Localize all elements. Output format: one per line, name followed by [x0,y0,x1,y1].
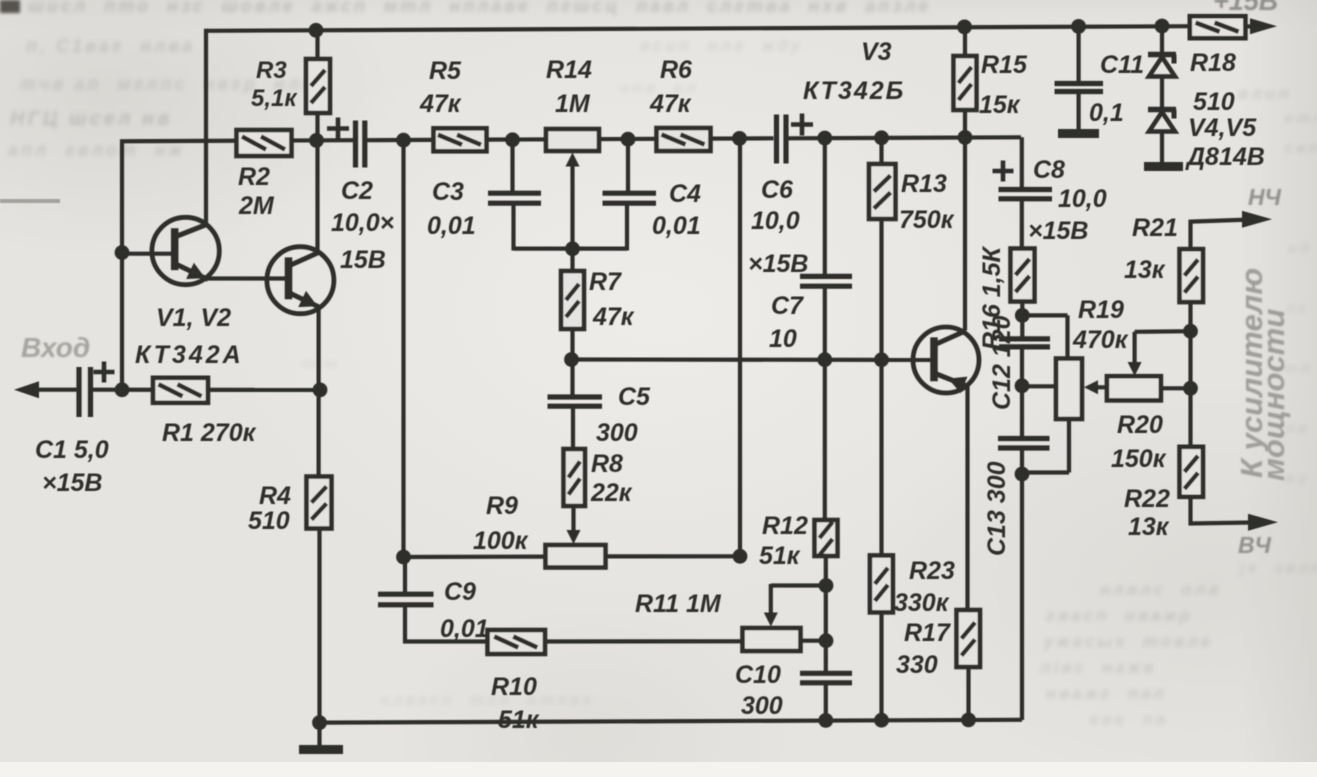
svg-text:×15В: ×15В [748,250,808,278]
svg-text:R10: R10 [491,673,537,701]
svg-text:15В: 15В [340,246,386,274]
svg-text:V3: V3 [861,38,892,66]
svg-text:С10: С10 [735,661,781,689]
svg-text:13к: 13к [1128,513,1170,541]
svg-text:R9: R9 [486,492,518,520]
svg-text:Д814В: Д814В [1185,143,1265,171]
svg-text:С4: С4 [669,180,701,208]
svg-text:R12: R12 [762,512,808,540]
svg-text:R23: R23 [909,557,955,585]
svg-text:15к: 15к [979,91,1021,119]
svg-text:R5: R5 [429,57,462,85]
svg-text:100к: 100к [473,527,529,555]
svg-text:51к: 51к [498,706,540,734]
svg-text:22к: 22к [590,479,633,507]
svg-text:47к: 47к [649,90,692,118]
svg-text:С2: С2 [341,177,373,205]
svg-text:С7: С7 [771,292,804,320]
svg-text:R3: R3 [256,57,287,84]
svg-text:С12 120: С12 120 [988,315,1016,410]
svg-text:10,0: 10,0 [751,207,800,235]
svg-text:×15В: ×15В [1028,217,1088,245]
svg-text:0,01: 0,01 [440,615,489,643]
svg-text:2М: 2М [238,192,275,220]
svg-text:R1 270к: R1 270к [162,419,257,447]
svg-text:47к: 47к [419,90,462,118]
svg-text:47к: 47к [592,303,635,331]
svg-text:V1, V2: V1, V2 [156,304,231,332]
svg-text:510: 510 [1193,88,1235,116]
svg-text:С9: С9 [444,578,476,606]
svg-text:R18: R18 [1190,49,1236,77]
svg-text:R8: R8 [591,450,623,478]
svg-text:×15В: ×15В [42,469,102,497]
svg-text:470к: 470к [1072,326,1129,354]
svg-text:0,1: 0,1 [1089,99,1124,127]
svg-text:R6: R6 [660,56,693,84]
svg-text:R17: R17 [904,619,951,647]
svg-text:R14: R14 [546,56,592,84]
svg-text:1М: 1М [555,90,591,118]
svg-text:300: 300 [741,692,783,720]
svg-text:R21: R21 [1132,214,1178,242]
svg-text:С11: С11 [1100,51,1144,79]
svg-text:Вход: Вход [21,332,90,363]
svg-text:13к: 13к [1124,256,1166,284]
svg-text:R13: R13 [901,170,947,198]
svg-text:КТ342А: КТ342А [135,341,244,369]
svg-text:НЧ: НЧ [1248,184,1282,210]
svg-text:R22: R22 [1124,485,1170,513]
svg-text:150к: 150к [1111,445,1167,473]
svg-text:0,01: 0,01 [652,212,701,240]
svg-text:510: 510 [248,507,290,535]
svg-text:мощности: мощности [1256,309,1291,481]
svg-text:750к: 750к [899,206,955,234]
svg-text:330: 330 [896,651,938,679]
svg-text:R2: R2 [238,163,270,191]
svg-text:R7: R7 [589,268,622,296]
svg-text:С8: С8 [1033,156,1065,184]
svg-text:10,0: 10,0 [1058,185,1107,213]
svg-text:С3: С3 [432,178,464,206]
svg-text:С1 5,0: С1 5,0 [35,436,109,464]
svg-text:R15: R15 [981,51,1028,79]
svg-text:С13 300: С13 300 [983,461,1011,556]
svg-text:5,1к: 5,1к [251,85,298,112]
svg-text:300: 300 [596,419,638,447]
svg-text:R4: R4 [259,482,291,510]
svg-text:R19: R19 [1078,296,1124,324]
svg-text:КТ342Б: КТ342Б [803,77,905,105]
svg-text:R20: R20 [1117,411,1163,439]
svg-text:+15В: +15В [1213,0,1278,16]
svg-text:С6: С6 [761,176,794,204]
svg-text:V4,V5: V4,V5 [1188,114,1257,142]
svg-text:10: 10 [769,325,797,353]
svg-text:0,01: 0,01 [427,212,476,240]
svg-text:330к: 330к [894,589,950,617]
svg-text:ВЧ: ВЧ [1238,532,1272,558]
svg-text:R11 1М: R11 1М [635,590,722,618]
svg-text:51к: 51к [759,542,801,570]
svg-text:С5: С5 [618,383,651,411]
svg-text:10,0×: 10,0× [331,209,395,237]
